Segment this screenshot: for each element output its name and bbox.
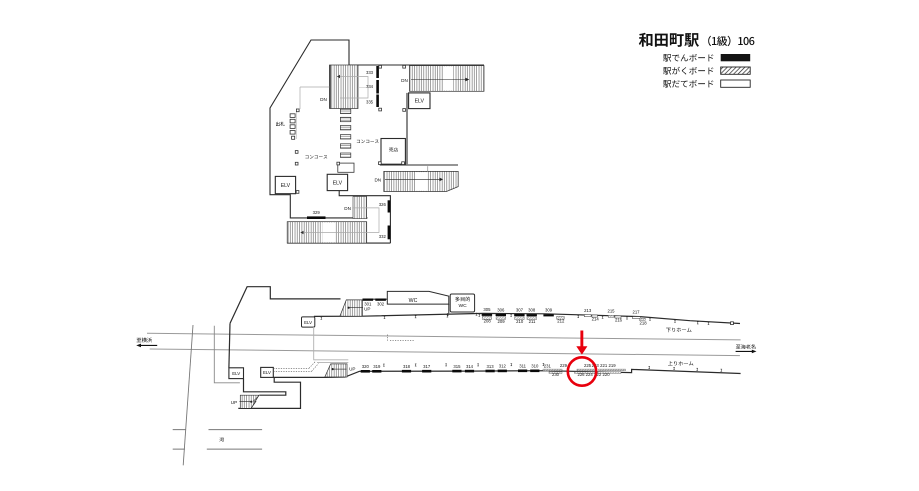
- svg-text:215: 215: [607, 309, 615, 314]
- svg-text:319: 319: [373, 364, 381, 369]
- svg-text:DN: DN: [401, 78, 408, 83]
- svg-text:315: 315: [453, 364, 461, 369]
- svg-text:311: 311: [519, 364, 526, 369]
- svg-text:ELV: ELV: [232, 371, 240, 376]
- svg-text:DN: DN: [344, 206, 351, 211]
- svg-text:UP: UP: [231, 400, 237, 405]
- svg-text:214: 214: [592, 316, 600, 321]
- svg-text:306: 306: [497, 307, 505, 312]
- svg-text:229: 229: [560, 363, 568, 368]
- svg-text:218: 218: [640, 320, 648, 325]
- svg-text:ELV: ELV: [333, 180, 343, 186]
- svg-text:308: 308: [528, 308, 536, 313]
- svg-text:208: 208: [484, 319, 492, 324]
- svg-text:334: 334: [366, 84, 374, 89]
- svg-text:UP: UP: [349, 366, 355, 371]
- svg-text:231: 231: [544, 364, 552, 369]
- svg-text:209: 209: [498, 319, 506, 324]
- svg-text:305: 305: [483, 307, 491, 312]
- svg-text:ELV: ELV: [415, 99, 425, 105]
- svg-text:216: 216: [615, 317, 623, 322]
- svg-text:220: 220: [603, 372, 611, 377]
- svg-text:DN: DN: [320, 97, 327, 102]
- svg-text:301: 301: [364, 302, 372, 307]
- svg-text:335: 335: [366, 99, 374, 104]
- svg-text:UP: UP: [364, 307, 370, 312]
- svg-text:ELV: ELV: [281, 183, 291, 189]
- svg-text:WC: WC: [409, 298, 418, 304]
- svg-text:320: 320: [362, 364, 370, 369]
- svg-text:ELV: ELV: [304, 320, 312, 325]
- svg-text:224: 224: [586, 372, 594, 377]
- svg-text:WC: WC: [459, 303, 468, 309]
- svg-text:210: 210: [516, 319, 524, 324]
- svg-text:309: 309: [545, 308, 553, 313]
- svg-text:DN: DN: [374, 178, 381, 183]
- svg-text:302: 302: [377, 302, 385, 307]
- svg-text:333: 333: [366, 70, 374, 75]
- svg-text:318: 318: [403, 364, 411, 369]
- svg-text:314: 314: [466, 364, 474, 369]
- svg-text:329: 329: [313, 210, 321, 215]
- svg-text:213: 213: [584, 308, 592, 313]
- svg-text:226: 226: [577, 372, 585, 377]
- svg-text:212: 212: [557, 319, 565, 324]
- svg-text:332: 332: [379, 234, 387, 239]
- svg-text:219: 219: [609, 363, 617, 368]
- svg-text:317: 317: [423, 364, 431, 369]
- svg-text:221: 221: [600, 363, 608, 368]
- svg-text:230: 230: [552, 372, 560, 377]
- svg-text:313: 313: [487, 364, 495, 369]
- svg-text:326: 326: [379, 202, 387, 207]
- svg-text:307: 307: [516, 307, 524, 312]
- svg-text:312: 312: [499, 364, 507, 369]
- svg-text:211: 211: [529, 319, 536, 324]
- svg-text:ELV: ELV: [263, 370, 271, 375]
- svg-text:225: 225: [584, 363, 592, 368]
- svg-text:310: 310: [531, 364, 539, 369]
- svg-text:217: 217: [632, 310, 640, 315]
